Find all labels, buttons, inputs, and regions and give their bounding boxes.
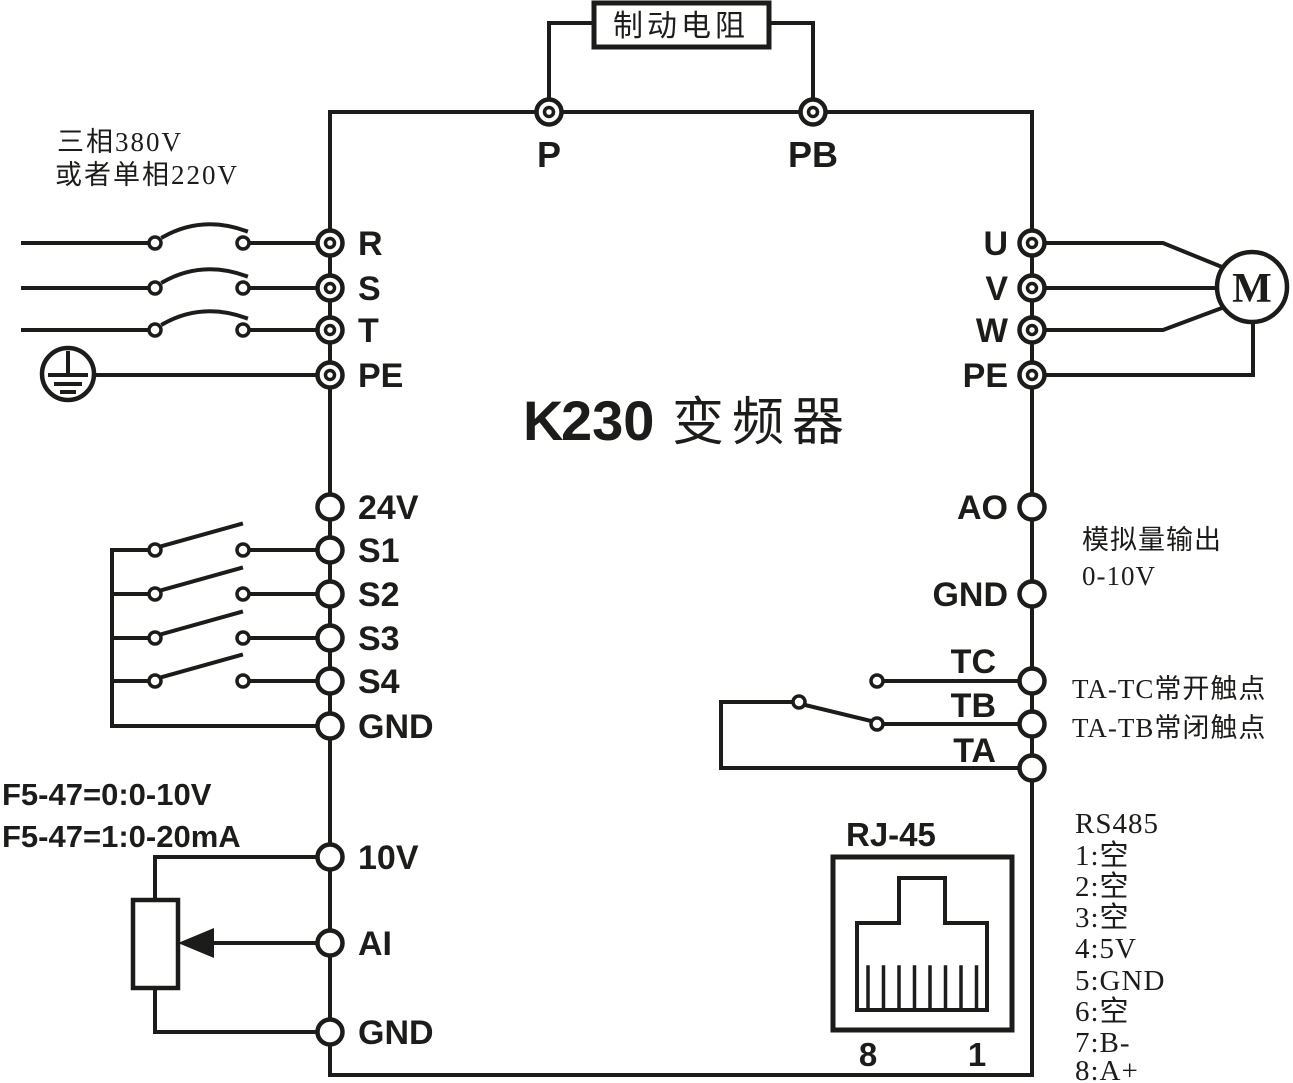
terminal-24v [318, 495, 343, 520]
wire-p-to-resistor [549, 23, 594, 98]
wire-pot-to-gnd [155, 988, 330, 1032]
power-input-section: 三相380V 或者单相220V [23, 127, 403, 400]
breaker-contact-s-right [237, 282, 249, 294]
terminal-s3 [318, 626, 343, 651]
rj45-pin1-label: 1 [968, 1036, 986, 1073]
terminal-10v [318, 845, 343, 870]
rs485-pin2: 2:空 [1075, 870, 1130, 903]
diagram-canvas: K 230 变频器 制动电阻 P PB 三相380V 或者单相220V [0, 0, 1293, 1083]
rj45-pin8-label: 8 [859, 1036, 877, 1073]
label-ta: TA [953, 732, 996, 770]
label-p: P [537, 134, 561, 175]
motor-label: M [1232, 266, 1272, 312]
label-24v: 24V [358, 489, 419, 527]
breaker-blade-t [163, 311, 246, 324]
wire-10v-to-pot [155, 857, 330, 900]
breaker-contact-t-left [149, 324, 161, 336]
earth-ground-icon [42, 348, 94, 400]
terminal-p-inner [545, 108, 554, 117]
terminal-pb-inner [809, 108, 818, 117]
label-v: V [985, 270, 1008, 308]
relay-contact-tb [871, 718, 883, 730]
rj45-jack-outline [857, 878, 987, 1010]
switch-contact-s3-left [149, 632, 161, 644]
rs485-pin6: 6:空 [1075, 995, 1130, 1028]
analog-output-section: AO GND 模拟量输出 0-10V [932, 489, 1222, 614]
label-ao: AO [957, 489, 1008, 527]
inverter-block: K 230 变频器 [330, 112, 1032, 1075]
title-cn: 变频器 [672, 395, 852, 452]
terminal-s2 [318, 582, 343, 607]
terminal-tc [1020, 669, 1045, 694]
wiring-diagram: K 230 变频器 制动电阻 P PB 三相380V 或者单相220V [0, 0, 1293, 1083]
label-gnd-analog-in: GND [358, 1014, 434, 1052]
label-tb: TB [951, 687, 996, 725]
title-k: K [523, 389, 563, 452]
label-gnd-digital: GND [358, 708, 434, 746]
terminal-ta [1020, 756, 1045, 781]
label-s2: S2 [358, 576, 400, 614]
relay-blade [805, 705, 871, 721]
wire-resistor-to-pb [769, 23, 813, 98]
relay-output-section: TC TB TA TA-TC常开触点 TA-TB常闭触点 [721, 643, 1266, 781]
breaker-contact-r-left [149, 237, 161, 249]
rs485-pin1: 1:空 [1075, 839, 1130, 872]
analog-input-section: F5-47=0:0-10V F5-47=1:0-20mA 10V AI GND [2, 777, 434, 1052]
label-w: W [976, 312, 1009, 350]
label-ai: AI [358, 925, 392, 963]
switch-blade-s2 [162, 568, 241, 590]
terminal-s4 [318, 669, 343, 694]
switch-contact-s4-right [237, 675, 249, 687]
terminal-ai [318, 931, 343, 956]
power-note-line1: 三相380V [57, 127, 183, 157]
power-note-line2: 或者单相220V [55, 160, 239, 190]
analog-in-note-line2: F5-47=1:0-20mA [2, 819, 241, 854]
digital-input-section: 24V S1 S2 S3 S4 GND [112, 489, 434, 746]
motor-output-section: M U V W PE [963, 225, 1287, 395]
rs485-section: RS485 1:空 2:空 3:空 4:5V 5:GND 6:空 7:B- 8:… [1075, 808, 1165, 1083]
brake-resistor-label: 制动电阻 [613, 10, 749, 43]
label-s: S [358, 270, 381, 308]
label-gnd-analog-out: GND [932, 576, 1008, 614]
analog-out-note-line2: 0-10V [1082, 561, 1156, 591]
label-pb: PB [788, 134, 838, 175]
terminal-s-inner [326, 284, 335, 293]
potentiometer-wiper-arrow [178, 928, 214, 958]
switch-contact-s3-right [237, 632, 249, 644]
relay-note-line1: TA-TC常开触点 [1072, 674, 1266, 704]
relay-contact-tc [871, 675, 883, 687]
terminal-gnd-analog-out [1020, 582, 1045, 607]
terminal-pe-out-inner [1028, 371, 1037, 380]
wire-w [1032, 308, 1222, 330]
terminal-v-inner [1028, 284, 1037, 293]
breaker-contact-r-right [237, 237, 249, 249]
switch-contact-s2-right [237, 588, 249, 600]
breaker-blade-r [163, 224, 246, 237]
switch-contact-s4-left [149, 675, 161, 687]
terminal-gnd-digital [318, 714, 343, 739]
rj45-label: RJ-45 [846, 816, 936, 853]
switch-contact-s1-right [237, 544, 249, 556]
title-num: 230 [561, 389, 654, 452]
rs485-pin8: 8:A+ [1075, 1055, 1139, 1083]
inverter-outline [330, 112, 1032, 1075]
switch-blade-s4 [162, 655, 241, 677]
relay-note-line2: TA-TB常闭触点 [1072, 713, 1266, 743]
switch-contact-s1-left [149, 544, 161, 556]
terminal-tb [1020, 712, 1045, 737]
switch-blade-s3 [162, 612, 241, 634]
rs485-pin5: 5:GND [1075, 965, 1165, 997]
terminal-pe-in-inner [326, 371, 335, 380]
brake-resistor-circuit: 制动电阻 P PB [537, 3, 839, 175]
label-u: U [983, 225, 1008, 263]
breaker-blade-s [163, 269, 246, 282]
rs485-pin4: 4:5V [1075, 933, 1137, 965]
rs485-pin3: 3:空 [1075, 901, 1130, 934]
label-10v: 10V [358, 839, 419, 877]
label-s4: S4 [358, 663, 400, 701]
inverter-title: K 230 变频器 [523, 389, 852, 452]
label-t: T [358, 312, 379, 350]
breaker-contact-t-right [237, 324, 249, 336]
wire-pe-motor [1032, 310, 1253, 375]
wire-u [1032, 243, 1222, 267]
terminal-t-inner [326, 326, 335, 335]
terminal-s1 [318, 538, 343, 563]
label-r: R [358, 225, 383, 263]
potentiometer-body [133, 900, 178, 988]
label-tc: TC [951, 643, 996, 681]
rs485-header: RS485 [1075, 808, 1159, 840]
breaker-contact-s-left [149, 282, 161, 294]
terminal-u-inner [1028, 239, 1037, 248]
analog-out-note-line1: 模拟量输出 [1082, 525, 1222, 555]
label-s1: S1 [358, 532, 400, 570]
terminal-ao [1020, 495, 1045, 520]
rj45-section: RJ-45 8 1 [833, 816, 1012, 1073]
label-s3: S3 [358, 620, 400, 658]
label-pe-in: PE [358, 357, 403, 395]
terminal-gnd-analog-in [318, 1020, 343, 1045]
analog-in-note-line1: F5-47=0:0-10V [2, 777, 212, 812]
switch-contact-s2-left [149, 588, 161, 600]
relay-pivot [793, 696, 805, 708]
terminal-w-inner [1028, 326, 1037, 335]
rj45-pins [868, 967, 977, 1008]
switch-blade-s1 [162, 524, 241, 546]
label-pe-out: PE [963, 357, 1008, 395]
terminal-r-inner [326, 239, 335, 248]
